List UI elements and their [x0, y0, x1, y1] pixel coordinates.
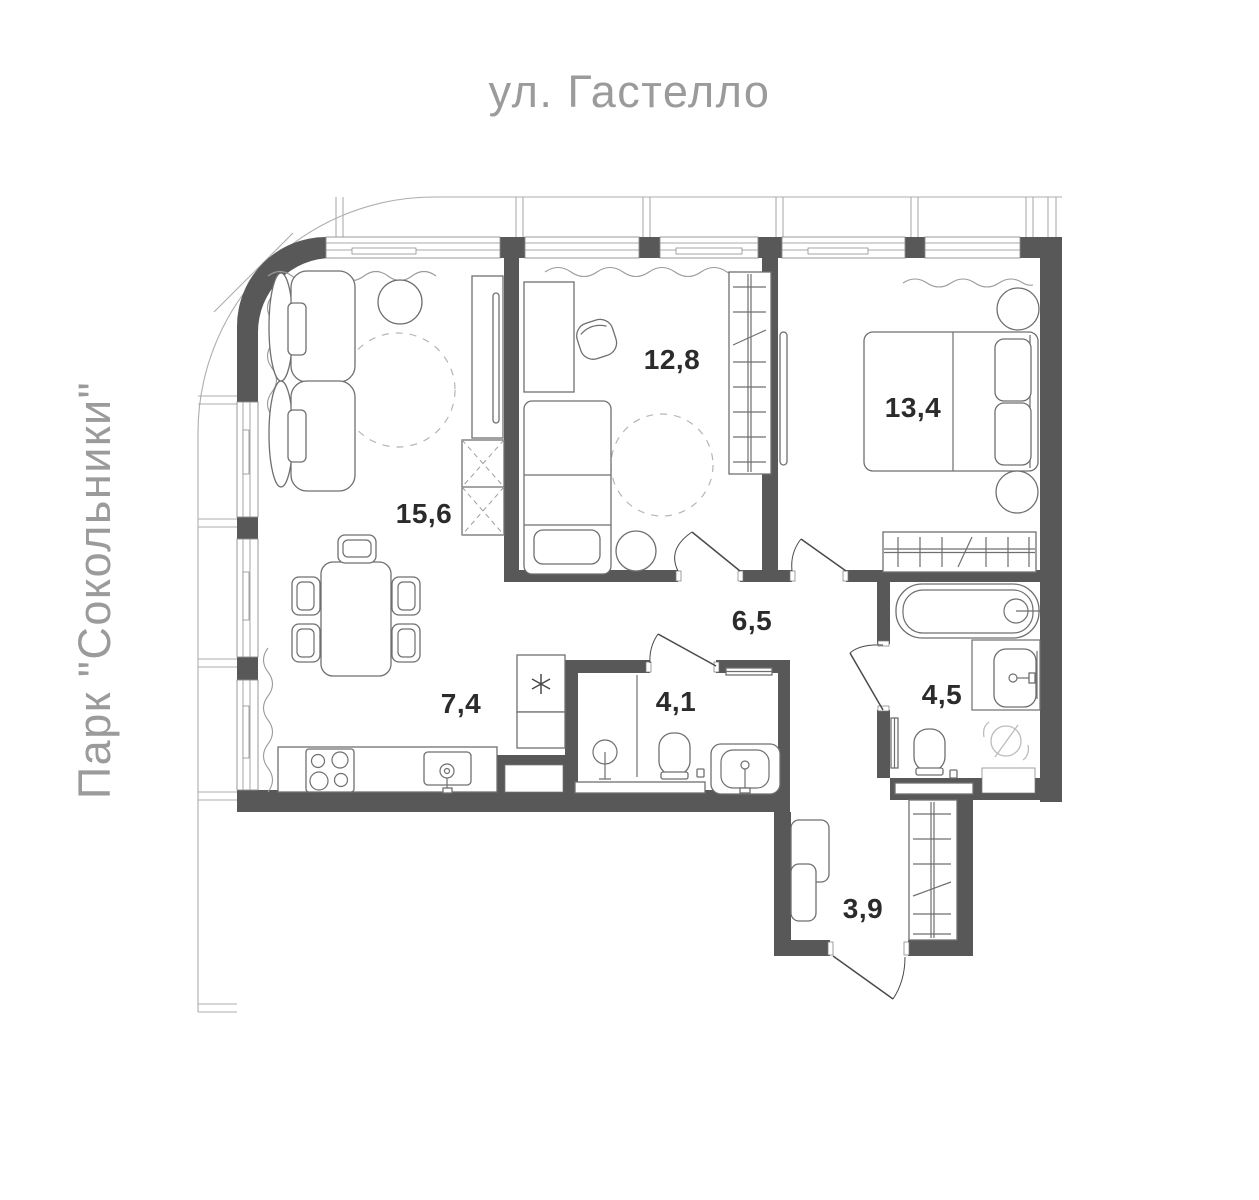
dining-table: [321, 562, 391, 676]
bedroom-master-furniture: [780, 288, 1039, 572]
desk-chair: [573, 316, 620, 363]
pillow: [534, 530, 600, 564]
window: [782, 237, 905, 258]
door-bathroom-tub: [850, 653, 883, 710]
sofa-pillow: [288, 303, 306, 355]
curtain: [903, 279, 1033, 287]
area-label-hallway: 6,5: [732, 605, 772, 636]
pouf: [616, 531, 656, 571]
nightstand: [997, 288, 1039, 330]
area-label-bathroom-tub: 4,5: [922, 679, 962, 710]
facade-mullions: [336, 197, 1056, 237]
toilet: [659, 733, 690, 775]
tv: [780, 332, 787, 465]
chair: [392, 624, 420, 662]
area-label-bedroom-small: 12,8: [644, 344, 701, 375]
chair: [292, 624, 320, 662]
tap: [443, 788, 452, 793]
curtain: [545, 268, 753, 277]
pillow: [995, 403, 1031, 465]
door-bathroom-shower: [658, 634, 716, 666]
toilet: [914, 729, 945, 771]
window: [326, 237, 500, 258]
tv: [493, 293, 499, 423]
right-wall: [1040, 237, 1062, 802]
floor-plan: 15,6 7,4 12,8 13,4 6,5 4,1 4,5 3,9: [0, 0, 1259, 1200]
brush: [950, 770, 957, 778]
cabinet: [517, 712, 565, 748]
pillow: [995, 339, 1031, 401]
tap: [740, 788, 750, 793]
bedroom-small-furniture: [524, 272, 771, 574]
desk: [524, 282, 574, 392]
door-bedroom-master: [801, 539, 846, 571]
chair: [338, 535, 376, 563]
washing-machine: [984, 722, 1029, 760]
area-label-entry-hall: 3,9: [843, 893, 883, 924]
window: [660, 237, 758, 258]
window: [925, 237, 1020, 258]
nightstand: [996, 471, 1038, 513]
area-label-bathroom-shower: 4,1: [656, 686, 696, 717]
chair: [392, 577, 420, 615]
living-rug: [341, 333, 455, 447]
curtain: [264, 648, 273, 792]
coffee-table: [378, 280, 422, 324]
bedroom-small-rug: [611, 414, 713, 516]
sofa-pillow: [288, 410, 306, 462]
console-cabinet: [791, 864, 816, 921]
duct-inner: [505, 765, 563, 792]
bathroom-tub-fixtures: [891, 584, 1040, 794]
entrance-door: [833, 956, 893, 999]
shelf: [895, 783, 973, 794]
brush: [697, 769, 704, 777]
wardrobe: [909, 800, 957, 940]
wardrobe: [729, 272, 771, 474]
door-bedroom-small: [692, 532, 740, 571]
facade-ticks: [198, 396, 237, 1004]
bottom-wall: [237, 790, 790, 812]
area-label-bedroom-master: 13,4: [885, 392, 942, 423]
wall-niche: [982, 768, 1035, 793]
area-label-living-room: 15,6: [396, 498, 453, 529]
tap: [1029, 673, 1035, 683]
area-label-kitchen: 7,4: [441, 688, 481, 719]
partition-living: [504, 258, 519, 572]
living-room-furniture: [269, 271, 504, 676]
shelf: [575, 782, 705, 793]
window: [525, 237, 639, 258]
chair: [292, 577, 320, 615]
